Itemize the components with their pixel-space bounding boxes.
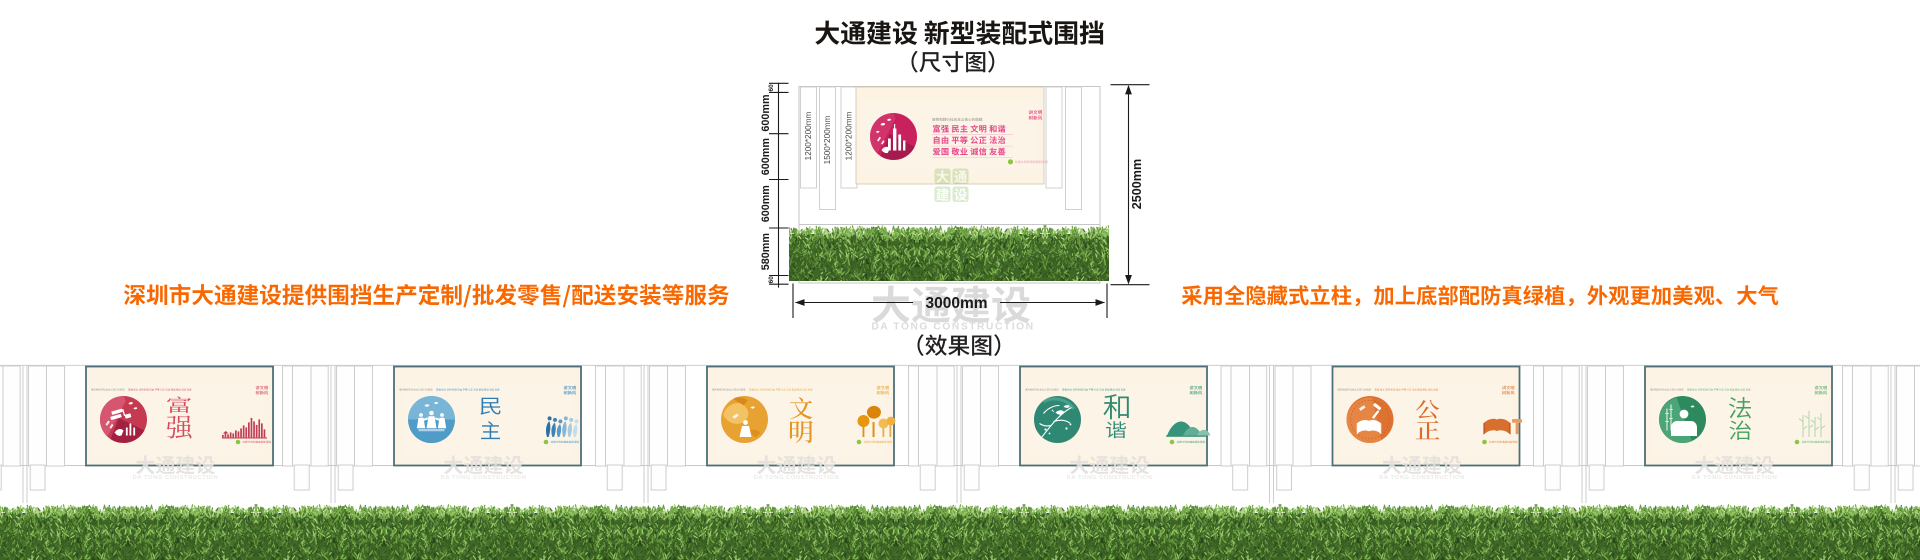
svg-text:3000mm: 3000mm <box>925 295 987 312</box>
svg-text:600mm: 600mm <box>760 94 772 131</box>
svg-text:60: 60 <box>768 84 775 92</box>
svg-text:DA TONG CONSTRUCTION: DA TONG CONSTRUCTION <box>441 475 527 481</box>
svg-text:DA TONG CONSTRUCTION: DA TONG CONSTRUCTION <box>1067 475 1153 481</box>
svg-text:DA TONG CONSTRUCTION: DA TONG CONSTRUCTION <box>133 475 219 481</box>
svg-text:2500mm: 2500mm <box>1130 159 1144 209</box>
svg-text:DA TONG CONSTRUCTION: DA TONG CONSTRUCTION <box>754 475 840 481</box>
svg-text:1200*200mm: 1200*200mm <box>804 111 813 160</box>
svg-text:DA TONG CONSTRUCTION: DA TONG CONSTRUCTION <box>1379 475 1465 481</box>
svg-text:600mm: 600mm <box>760 185 772 222</box>
svg-text:600mm: 600mm <box>760 138 772 175</box>
svg-text:DA TONG CONSTRUCTION: DA TONG CONSTRUCTION <box>1692 475 1778 481</box>
svg-text:1200*200mm: 1200*200mm <box>844 111 853 160</box>
svg-text:DA TONG CONSTRUCTION: DA TONG CONSTRUCTION <box>871 322 1034 333</box>
svg-text:1500*200mm: 1500*200mm <box>823 115 832 164</box>
svg-text:580mm: 580mm <box>760 233 772 270</box>
svg-text:60: 60 <box>768 276 775 284</box>
